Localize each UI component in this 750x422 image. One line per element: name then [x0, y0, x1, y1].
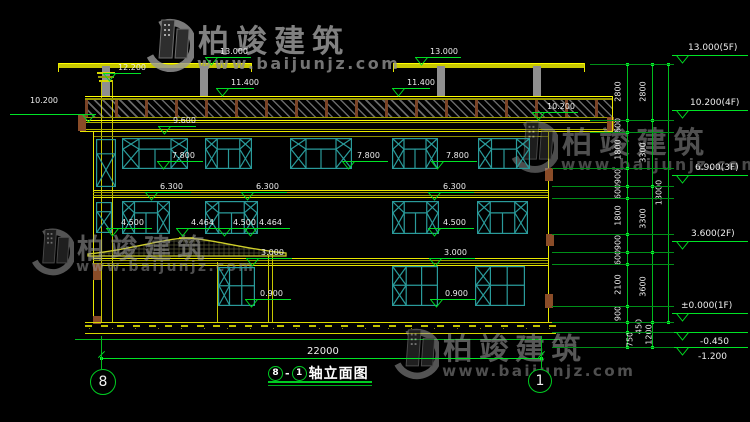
- dim-chain-label: 2800: [639, 78, 648, 106]
- dim-extension-line: [590, 64, 674, 65]
- title-text: 轴立面图: [309, 363, 369, 383]
- left-marker-triangle: [82, 114, 96, 123]
- dim-extension-line: [590, 120, 674, 121]
- dim-chain-line: [652, 64, 653, 347]
- canopy-end-tick: [58, 63, 59, 72]
- floor-band-6300: [93, 197, 548, 198]
- dim-extension-line: [552, 306, 674, 307]
- elevation-marker-label: 13.000: [220, 47, 248, 56]
- title-underline-thin: [268, 385, 372, 386]
- dim-chain-line: [668, 64, 669, 322]
- watermark-logo: [388, 326, 439, 387]
- dim-chain-label: 450: [635, 313, 644, 341]
- dim-chain-label: 3300: [639, 205, 648, 233]
- right-marker-label: -1.200: [698, 353, 727, 362]
- elevation-marker-triangle: [205, 57, 219, 66]
- elevation-marker-triangle: [415, 57, 429, 66]
- window: [475, 266, 525, 306]
- title-separator: -: [285, 367, 290, 380]
- elevation-marker-label: 7.800: [357, 151, 380, 160]
- parapet-top-rail: [85, 96, 612, 97]
- porch-wall: [268, 254, 269, 322]
- right-marker-triangle: [676, 110, 690, 119]
- dim-chain-label: 2800: [614, 78, 623, 106]
- elevation-marker-triangle: [244, 228, 258, 237]
- title-underline-thick: [268, 381, 372, 383]
- right-marker-triangle: [676, 55, 690, 64]
- dim-chain-label: 1800: [614, 136, 623, 164]
- elevation-marker-label: 0.900: [445, 289, 468, 298]
- grid-bubble: 8: [90, 369, 116, 395]
- plinth-top: [85, 322, 556, 323]
- right-marker-triangle: [676, 347, 690, 356]
- overall-dim-line: [101, 358, 541, 359]
- elevation-marker-label: 4.464: [191, 218, 214, 227]
- elevation-marker-label: 6.300: [443, 182, 466, 191]
- elevation-marker-label: 6.300: [256, 182, 279, 191]
- right-marker-triangle: [676, 175, 690, 184]
- elevation-marker-triangle: [218, 228, 232, 237]
- elevation-marker-label: 6.300: [160, 182, 183, 191]
- elevation-marker-triangle: [106, 228, 120, 237]
- elevation-marker-label: 12.200: [118, 63, 146, 72]
- elevation-marker-label: 9.600: [173, 116, 196, 125]
- dim-chain-label: 3600: [639, 273, 648, 301]
- watermark-logo: [26, 226, 74, 282]
- window: [96, 139, 116, 187]
- elevation-marker-triangle: [532, 112, 546, 121]
- elevation-marker-triangle: [392, 88, 406, 97]
- dim-extension-line: [552, 347, 674, 348]
- dim-extension-line: [552, 332, 674, 333]
- dim-chain-label: 600: [614, 244, 623, 272]
- elevation-marker-triangle: [157, 161, 171, 170]
- elevation-marker-triangle: [158, 126, 172, 135]
- dim-extension-line: [552, 234, 674, 235]
- title-axis-to-bubble: 1: [292, 366, 307, 381]
- overall-dimension-label: 22000: [307, 347, 339, 356]
- grid-extension-line: [541, 336, 542, 368]
- watermark-logo: [140, 16, 194, 80]
- elevation-marker-triangle: [103, 73, 117, 82]
- dim-chain-label: 13000: [655, 179, 664, 207]
- elevation-marker-triangle: [428, 192, 442, 201]
- title-axis-from-bubble: 8: [268, 366, 283, 381]
- elevation-marker-label: 0.900: [260, 289, 283, 298]
- floor-band-6300: [93, 195, 548, 196]
- elevation-marker-triangle: [430, 299, 444, 308]
- dim-extension-line: [552, 198, 674, 199]
- elevation-marker-label: 13.000: [430, 47, 458, 56]
- elevation-marker-label: 4.500: [233, 218, 256, 227]
- elevation-marker-triangle: [176, 228, 190, 237]
- elevation-marker-triangle: [216, 88, 230, 97]
- roof-column: [533, 66, 541, 97]
- dim-chain-label: 900: [614, 300, 623, 328]
- porch-wall: [272, 254, 273, 322]
- elevation-marker-label: 4.464: [259, 218, 282, 227]
- dim-chain-label: 1200: [645, 320, 654, 348]
- elevation-marker-label: 3.000: [444, 248, 467, 257]
- elevation-marker-label: 11.400: [231, 78, 259, 87]
- elevation-marker-label: 10.200: [547, 102, 575, 111]
- cad-elevation-drawing: 柏竣建筑www.baijunjz.com柏竣建筑www.baijunjz.com…: [0, 0, 750, 422]
- drawing-title: 8 - 1 轴立面图: [268, 363, 369, 383]
- elevation-marker-triangle: [145, 192, 159, 201]
- elevation-marker-label: 4.500: [443, 218, 466, 227]
- elevation-marker-triangle: [429, 258, 443, 267]
- window: [205, 138, 252, 169]
- roof-column: [437, 66, 445, 97]
- grid-extension-line: [101, 336, 102, 369]
- elevation-marker-label: 7.800: [446, 151, 469, 160]
- elevation-marker-label: 7.800: [172, 151, 195, 160]
- dim-extension-line: [552, 264, 674, 265]
- elevation-marker-triangle: [431, 161, 445, 170]
- elevation-marker-triangle: [428, 228, 442, 237]
- right-marker-label: -0.450: [700, 338, 729, 347]
- right-marker-label: ±0.000(1F): [681, 302, 732, 311]
- dim-extension-line: [552, 186, 674, 187]
- lintel-line-4f: [93, 136, 548, 137]
- dim-extension-line: [552, 252, 674, 253]
- dim-extension-line: [552, 322, 674, 323]
- right-marker-label: 6.900(3F): [695, 164, 739, 173]
- wall-bracket: [546, 234, 554, 246]
- elevation-marker-label: 4.500: [121, 218, 144, 227]
- window: [477, 201, 528, 234]
- right-marker-label: 3.600(2F): [691, 230, 735, 239]
- window: [478, 138, 530, 169]
- dim-extension-line: [552, 168, 674, 169]
- elevation-marker-triangle: [241, 192, 255, 201]
- left-marker-label: 10.200: [30, 96, 58, 105]
- dim-chain-label: 3300: [639, 139, 648, 167]
- dim-chain-label: 2100: [614, 271, 623, 299]
- elevation-marker-triangle: [246, 258, 260, 267]
- right-marker-label: 13.000(5F): [688, 44, 737, 53]
- dim-extension-line: [590, 132, 674, 133]
- grid-bubble: 1: [528, 369, 552, 393]
- dim-chain-label: 750: [626, 325, 635, 353]
- right-marker-triangle: [676, 332, 690, 341]
- right-marker-label: 10.200(4F): [690, 99, 739, 108]
- right-marker-triangle: [676, 241, 690, 250]
- elevation-marker-label: 11.400: [407, 78, 435, 87]
- elevation-marker-triangle: [342, 161, 356, 170]
- dim-chain-label: 1800: [614, 202, 623, 230]
- right-marker-triangle: [676, 313, 690, 322]
- canopy-end-tick: [584, 63, 585, 72]
- elevation-marker-triangle: [245, 299, 259, 308]
- elevation-marker-label: 3.000: [261, 248, 284, 257]
